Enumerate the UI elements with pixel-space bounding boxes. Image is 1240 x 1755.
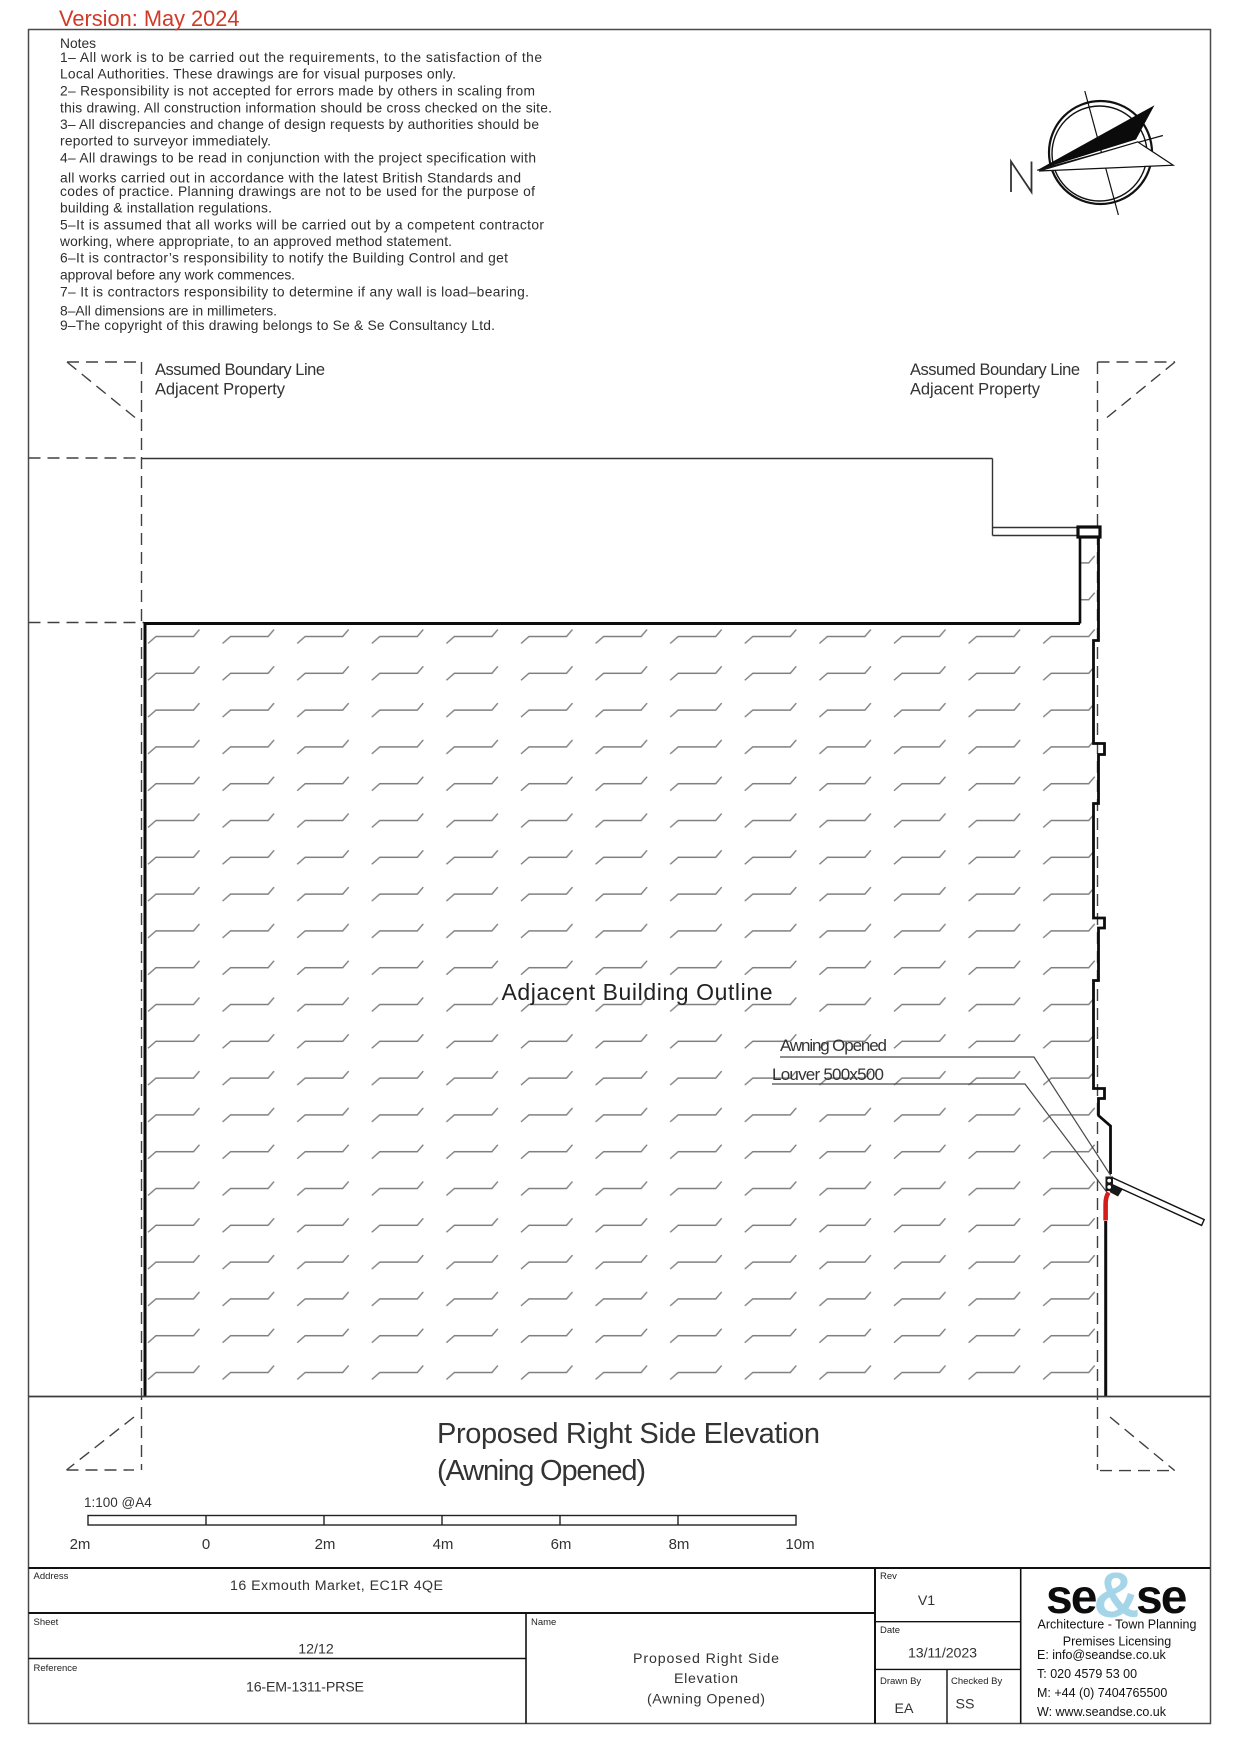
svg-text:W: www.seandse.co.uk: W: www.seandse.co.uk: [1037, 1705, 1167, 1719]
svg-text:working, where appropriate, to: working, where appropriate, to an approv…: [59, 234, 452, 249]
svg-text:2m: 2m: [70, 1536, 91, 1553]
svg-text:6–It is contractor’s responsib: 6–It is contractor’s responsibility to n…: [60, 251, 508, 266]
svg-text:SS: SS: [956, 1697, 975, 1713]
svg-text:5–It is assumed that all works: 5–It is assumed that all works will be c…: [60, 218, 544, 233]
svg-text:7– It is contractors responsib: 7– It is contractors responsibility to d…: [60, 285, 529, 300]
svg-text:M: +44 (0) 7404765500: M: +44 (0) 7404765500: [1037, 1686, 1167, 1700]
svg-text:E: info@seandse.co.uk: E: info@seandse.co.uk: [1037, 1648, 1166, 1662]
svg-text:Adjacent Property: Adjacent Property: [155, 381, 286, 399]
svg-text:Version: May 2024: Version: May 2024: [59, 6, 240, 31]
svg-text:Elevation: Elevation: [674, 1671, 738, 1687]
svg-text:Date: Date: [880, 1625, 900, 1636]
svg-text:Adjacent Building Outline: Adjacent Building Outline: [502, 979, 773, 1005]
svg-text:9–The copyright of this drawin: 9–The copyright of this drawing belongs …: [60, 318, 495, 333]
svg-text:(Awning Opened): (Awning Opened): [437, 1455, 646, 1487]
svg-text:V1: V1: [918, 1593, 935, 1609]
svg-text:Reference: Reference: [34, 1663, 78, 1674]
svg-text:0: 0: [202, 1536, 210, 1553]
svg-text:Address: Address: [34, 1571, 69, 1582]
svg-text:4– All drawings to be read in: 4– All drawings to be read in conjunctio…: [60, 151, 536, 166]
svg-text:Rev: Rev: [880, 1571, 897, 1582]
svg-text:Assumed Boundary Line: Assumed Boundary Line: [155, 361, 325, 379]
svg-text:Drawn By: Drawn By: [880, 1676, 921, 1687]
svg-text:4m: 4m: [433, 1536, 454, 1553]
svg-text:Architecture - Town Planning: Architecture - Town Planning: [1038, 1618, 1197, 1632]
svg-text:Proposed Right Side Elevation: Proposed Right Side Elevation: [437, 1418, 820, 1450]
svg-text:Proposed Right Side: Proposed Right Side: [633, 1651, 779, 1667]
svg-text:1:100 @A4: 1:100 @A4: [84, 1495, 152, 1510]
svg-text:(Awning Opened): (Awning Opened): [647, 1691, 765, 1707]
svg-text:T: 020 4579 53 00: T: 020 4579 53 00: [1037, 1667, 1137, 1681]
svg-text:Local Authorities. These drawi: Local Authorities. These drawings are fo…: [60, 67, 456, 82]
svg-text:2m: 2m: [315, 1536, 336, 1553]
svg-text:1– All work is to be carried o: 1– All work is to be carried out the req…: [60, 50, 542, 65]
svg-text:Sheet: Sheet: [34, 1617, 59, 1628]
svg-text:8–All dimensions are in millim: 8–All dimensions are in millimeters.: [60, 304, 277, 319]
svg-text:se: se: [1136, 1571, 1187, 1624]
svg-text:Louver 500x500: Louver 500x500: [772, 1065, 884, 1084]
svg-text:12/12: 12/12: [298, 1642, 334, 1658]
svg-text:16-EM-1311-PRSE: 16-EM-1311-PRSE: [246, 1680, 364, 1696]
svg-text:Assumed Boundary Line: Assumed Boundary Line: [910, 361, 1080, 379]
svg-text:13/11/2023: 13/11/2023: [908, 1645, 977, 1661]
svg-text:Checked By: Checked By: [951, 1676, 1002, 1687]
svg-text:building & installation regula: building & installation regulations.: [60, 201, 272, 216]
svg-text:8m: 8m: [669, 1536, 690, 1553]
svg-text:Adjacent Property: Adjacent Property: [910, 381, 1041, 399]
svg-text:codes of practice. Planning dr: codes of practice. Planning drawings are…: [60, 184, 535, 199]
svg-text:this drawing. All construction: this drawing. All construction informati…: [60, 101, 552, 116]
svg-text:Premises Licensing: Premises Licensing: [1063, 1635, 1171, 1649]
svg-text:3– All discrepancies and chang: 3– All discrepancies and change of desig…: [60, 117, 539, 132]
svg-text:Notes: Notes: [60, 36, 96, 51]
svg-text:16 Exmouth Market, EC1R 4QE: 16 Exmouth Market, EC1R 4QE: [230, 1578, 443, 1594]
svg-text:Awning Opened: Awning Opened: [780, 1036, 887, 1055]
svg-text:EA: EA: [895, 1701, 914, 1717]
svg-text:Name: Name: [531, 1617, 556, 1628]
svg-text:se: se: [1046, 1571, 1097, 1624]
svg-text:6m: 6m: [551, 1536, 572, 1553]
svg-text:reported to surveyor immediate: reported to surveyor immediately.: [60, 134, 271, 149]
svg-text:approval before any work comme: approval before any work commences.: [60, 268, 295, 283]
svg-text:2– Responsibility is not accep: 2– Responsibility is not accepted for er…: [60, 84, 535, 99]
svg-text:10m: 10m: [785, 1536, 814, 1553]
